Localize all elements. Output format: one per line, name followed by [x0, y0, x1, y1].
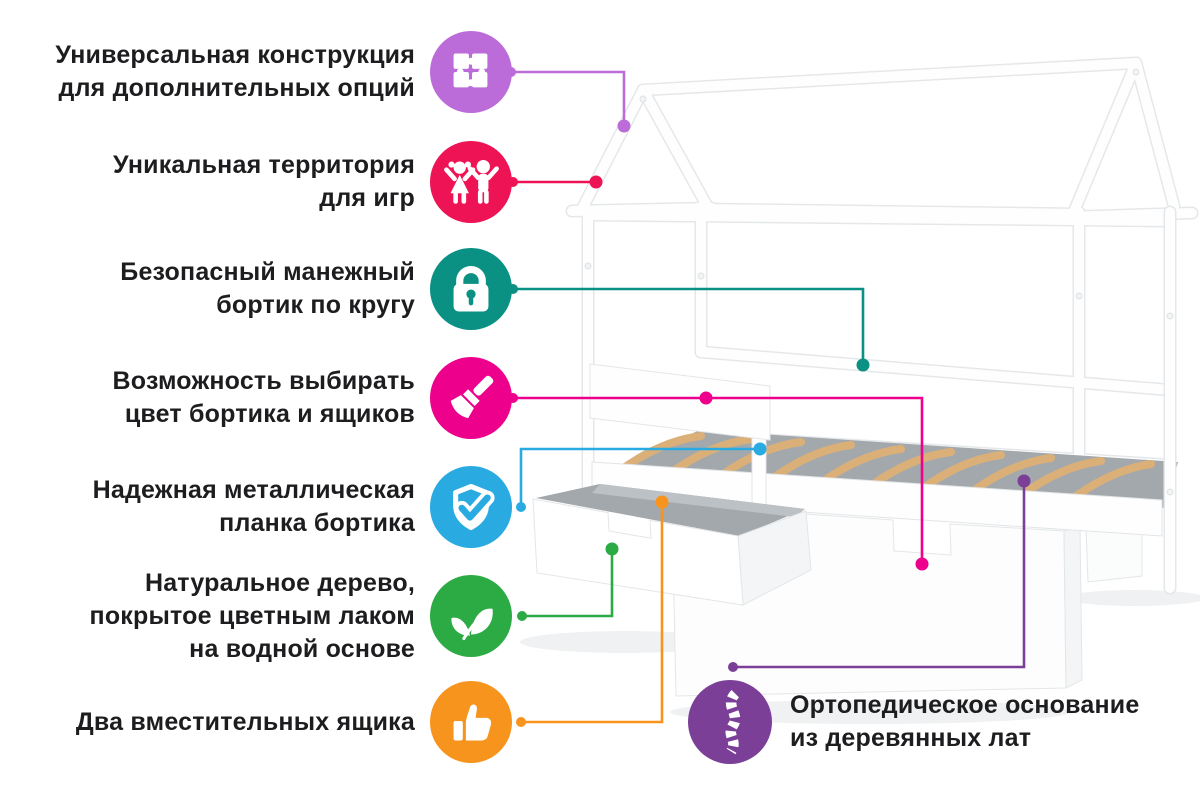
connector-universal-construction	[506, 67, 631, 133]
roof-ridge-beam	[643, 63, 1136, 90]
perimeter-fence-rail	[701, 352, 1170, 390]
connector-start-dot	[517, 611, 527, 621]
feature-label-line: бортик по кругу	[0, 289, 415, 322]
feature-label-line: Уникальная территория	[0, 149, 415, 182]
head-gable-left-slope	[583, 90, 643, 207]
safety-rail-panel	[590, 364, 770, 440]
feature-label: Натуральное дерево, покрытое цветным лак…	[0, 567, 430, 666]
feature-label-line: из деревянных лат	[790, 722, 1139, 755]
feature-label-line: Возможность выбирать	[0, 365, 415, 398]
lock-icon	[430, 248, 512, 330]
connector-start-dot	[728, 662, 738, 672]
puzzle-icon	[430, 31, 512, 113]
feature-label: Два вместительных ящика	[0, 706, 430, 739]
connector-end-dot	[916, 558, 929, 571]
shield-check-icon	[430, 466, 512, 548]
feature-item-orthopedic-base: Ортопедическое основание из деревянных л…	[688, 672, 1139, 772]
feature-label: Уникальная территория для игр	[0, 149, 430, 215]
feature-label: Безопасный манежный бортик по кругу	[0, 256, 430, 322]
thumbs-up-icon	[430, 681, 512, 763]
drawer-right-side	[1064, 526, 1082, 688]
leaf-icon	[430, 575, 512, 657]
feature-item-universal-construction: Универсальная конструкция для дополнител…	[0, 22, 512, 122]
infographic-canvas: Универсальная конструкция для дополнител…	[0, 0, 1200, 798]
feature-label: Надежная металлическая планка бортика	[0, 474, 430, 540]
feature-label: Возможность выбирать цвет бортика и ящик…	[0, 365, 430, 431]
connector-end-dot	[857, 359, 870, 372]
connector-end-dot	[1018, 475, 1031, 488]
feature-item-two-drawers: Два вместительных ящика	[0, 672, 512, 772]
connector-end-dot	[754, 443, 767, 456]
feature-label-line: цвет бортика и ящиков	[0, 398, 415, 431]
feature-label-line: покрытое цветным лаком	[0, 600, 415, 633]
children-icon	[430, 141, 512, 223]
feature-item-safety-rail: Безопасный манежный бортик по кругу	[0, 239, 512, 339]
feature-label: Ортопедическое основание из деревянных л…	[772, 689, 1139, 755]
feature-label: Универсальная конструкция для дополнител…	[0, 39, 430, 105]
foot-gable-right-slope	[1136, 63, 1174, 206]
connector-start-dot	[516, 717, 526, 727]
feature-label-line: Два вместительных ящика	[0, 706, 415, 739]
feature-label-line: Безопасный манежный	[0, 256, 415, 289]
connector-end-dot	[590, 176, 603, 189]
connector-end-dot	[606, 543, 619, 556]
feature-label-line: Универсальная конструкция	[0, 39, 415, 72]
feature-item-color-choice: Возможность выбирать цвет бортика и ящик…	[0, 348, 512, 448]
head-gable-right-slope	[643, 90, 706, 204]
connector-start-dot	[516, 502, 526, 512]
connector-end-dot	[618, 120, 631, 133]
feature-label-line: планка бортика	[0, 507, 415, 540]
feature-label-line: для игр	[0, 182, 415, 215]
far-eave-rail	[701, 209, 1079, 214]
connector-end-dot	[656, 496, 669, 509]
connector-mid-dot	[700, 392, 713, 405]
spine-icon	[688, 680, 772, 764]
feature-label-line: для дополнительных опций	[0, 72, 415, 105]
feature-item-natural-wood: Натуральное дерево, покрытое цветным лак…	[0, 566, 512, 666]
paintbrush-icon	[430, 357, 512, 439]
feature-item-play-territory: Уникальная территория для игр	[0, 132, 512, 232]
foot-gable-left-slope	[1075, 63, 1136, 209]
shadow-under-foot-post	[1065, 590, 1200, 606]
feature-item-metal-plank: Надежная металлическая планка бортика	[0, 457, 512, 557]
feature-label-line: Надежная металлическая	[0, 474, 415, 507]
feature-label-line: Ортопедическое основание	[790, 689, 1139, 722]
feature-label-line: Натуральное дерево,	[0, 567, 415, 600]
feature-label-line: на водной основе	[0, 633, 415, 666]
